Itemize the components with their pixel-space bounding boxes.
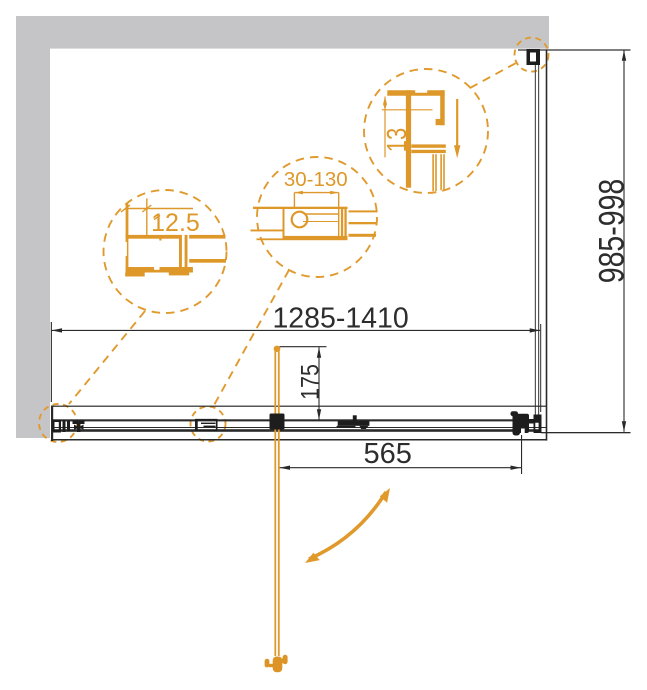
svg-text:1285-1410: 1285-1410 <box>272 303 408 335</box>
svg-text:12.5: 12.5 <box>151 209 200 237</box>
svg-text:30-130: 30-130 <box>284 168 348 191</box>
svg-text:565: 565 <box>364 438 412 470</box>
svg-text:13: 13 <box>382 128 413 152</box>
svg-text:985-998: 985-998 <box>592 179 631 284</box>
svg-text:175: 175 <box>296 364 324 400</box>
